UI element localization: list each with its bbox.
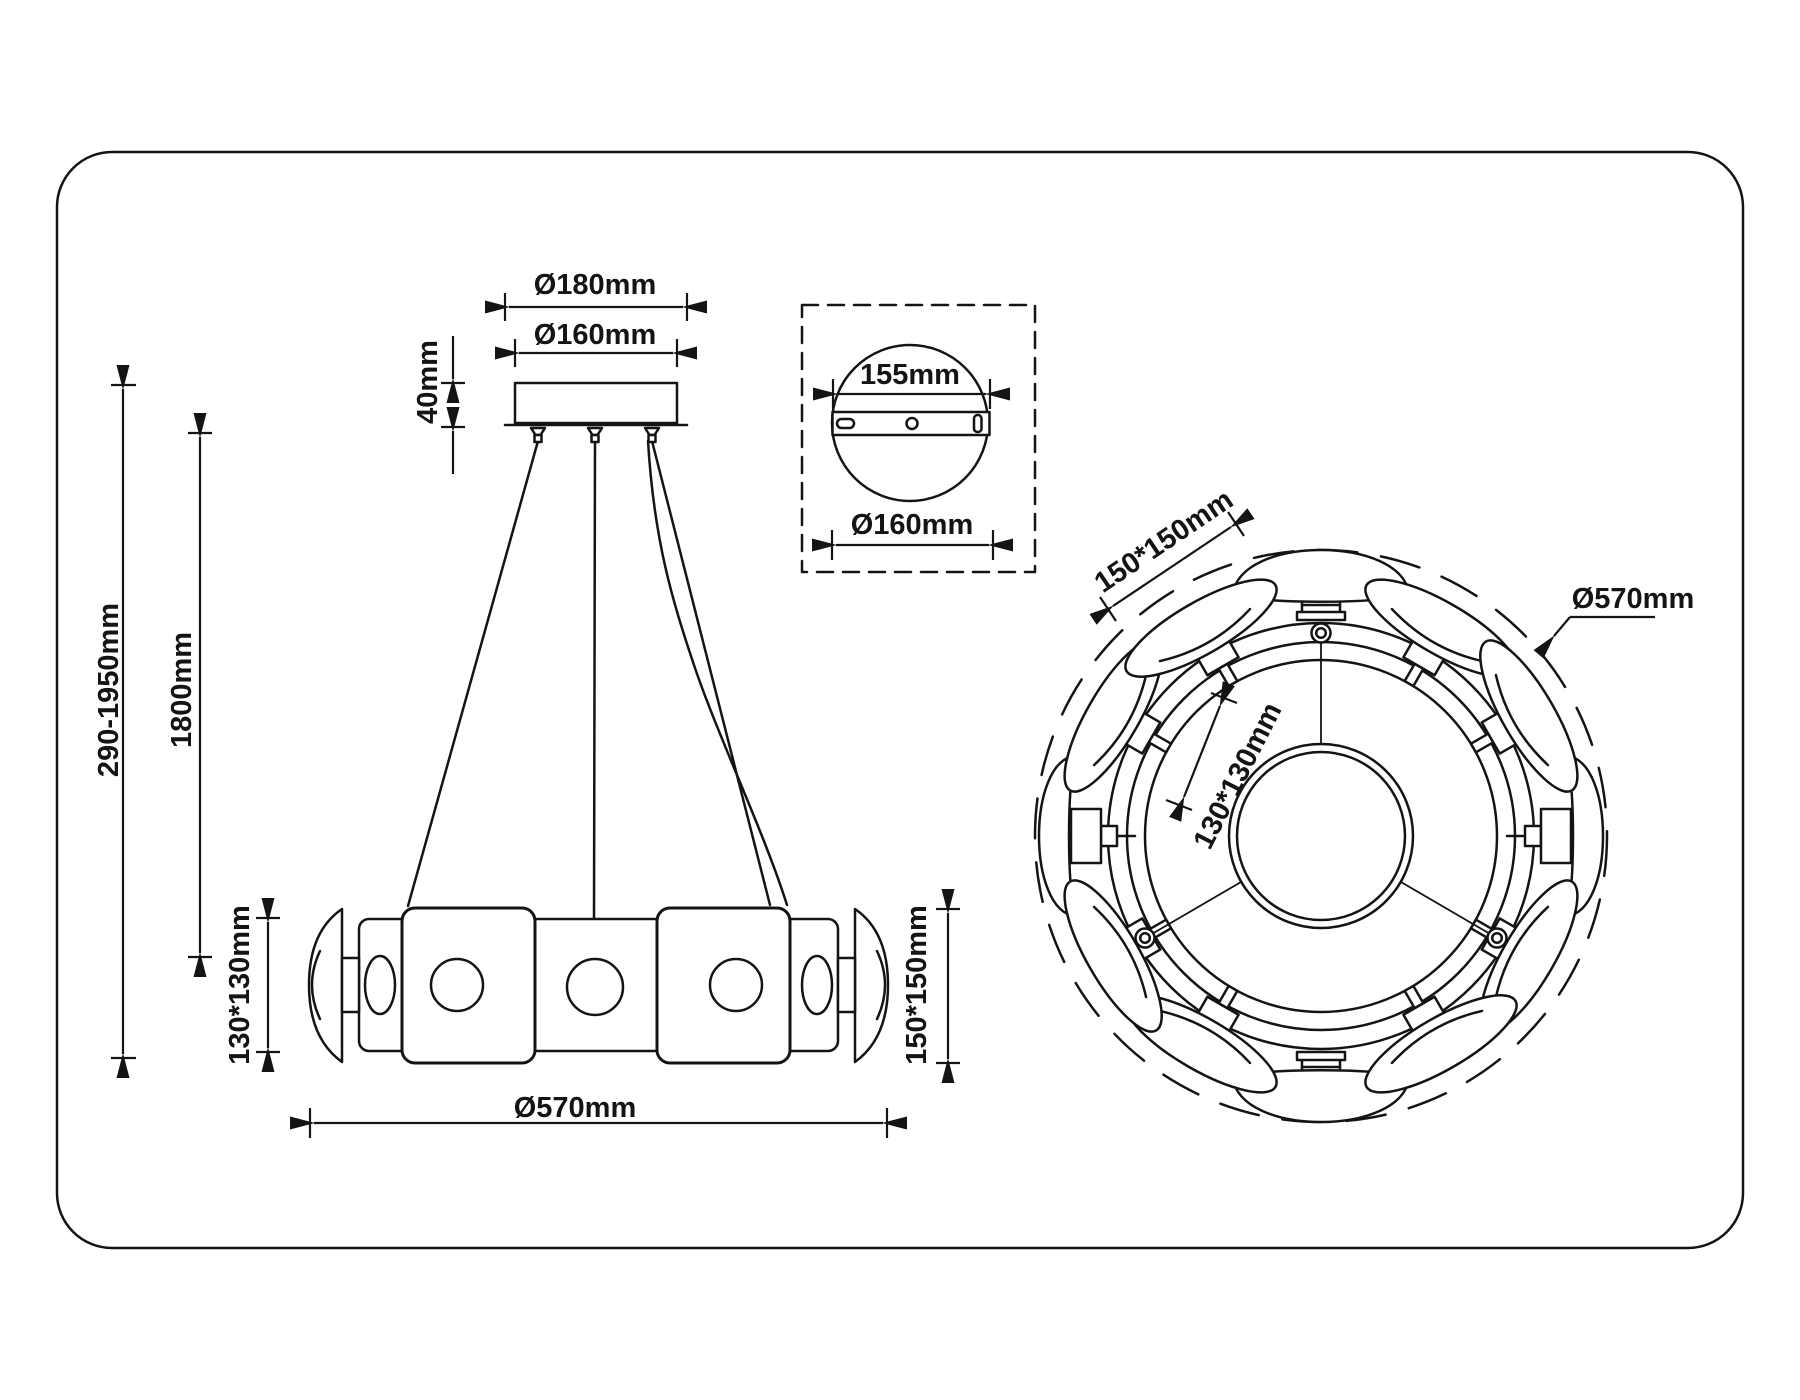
front-view: Ø180mm Ø160mm 40mm 290-1950mm <box>93 269 960 1138</box>
dim-bracket-length-label: 155mm <box>860 359 960 391</box>
dim-canopy-inner-label: Ø160mm <box>534 319 657 351</box>
dim-shade-right: 150*150mm <box>901 905 960 1065</box>
page-border <box>57 152 1743 1248</box>
drawing-canvas: Ø180mm Ø160mm 40mm 290-1950mm <box>0 0 1800 1400</box>
dim-canopy-height: 40mm <box>412 336 465 474</box>
dim-wire-length: 1800mm <box>166 433 212 957</box>
dim-wire-length-label: 1800mm <box>166 632 198 748</box>
dim-fixture-diameter-front: Ø570mm <box>310 1092 887 1138</box>
dim-shade-left: 130*130mm <box>224 905 280 1065</box>
panel-hole-right <box>710 959 762 1011</box>
band-hole-left <box>365 956 395 1014</box>
left-dome <box>309 909 359 1062</box>
top-view: 150*150mm 130*130mm Ø570mm <box>1035 484 1694 1122</box>
dim-fixture-diameter-front-label: Ø570mm <box>514 1092 637 1124</box>
mounting-bracket <box>833 412 990 435</box>
dim-canopy-outer-label: Ø180mm <box>534 269 657 301</box>
panel-hole-left <box>431 959 483 1011</box>
dim-top-diameter: Ø570mm <box>1554 583 1694 636</box>
band-hole-center <box>567 959 623 1015</box>
mount-detail-view: 155mm Ø160mm <box>802 305 1035 572</box>
right-dome <box>838 909 888 1062</box>
dim-plate-diameter: Ø160mm <box>832 509 993 560</box>
wire-grippers <box>531 428 659 442</box>
ceiling-canopy <box>505 383 687 442</box>
dim-plate-diameter-label: Ø160mm <box>851 509 974 541</box>
band-hole-right <box>802 956 832 1014</box>
technical-drawing-page: Ø180mm Ø160mm 40mm 290-1950mm <box>0 0 1800 1400</box>
dim-suspension-range-label: 290-1950mm <box>93 603 125 777</box>
dim-suspension-range: 290-1950mm <box>93 385 136 1058</box>
dim-top-shade-label: 150*150mm <box>1089 484 1239 600</box>
dim-shade-right-label: 150*150mm <box>901 905 933 1065</box>
shade-ring-front <box>309 908 888 1063</box>
dim-canopy-height-label: 40mm <box>412 340 444 424</box>
dim-top-diameter-label: Ø570mm <box>1572 583 1695 615</box>
dim-shade-left-label: 130*130mm <box>224 905 256 1065</box>
dim-canopy-outer: Ø180mm <box>505 269 687 321</box>
dim-canopy-inner: Ø160mm <box>515 319 677 367</box>
suspension-wires <box>408 441 787 919</box>
